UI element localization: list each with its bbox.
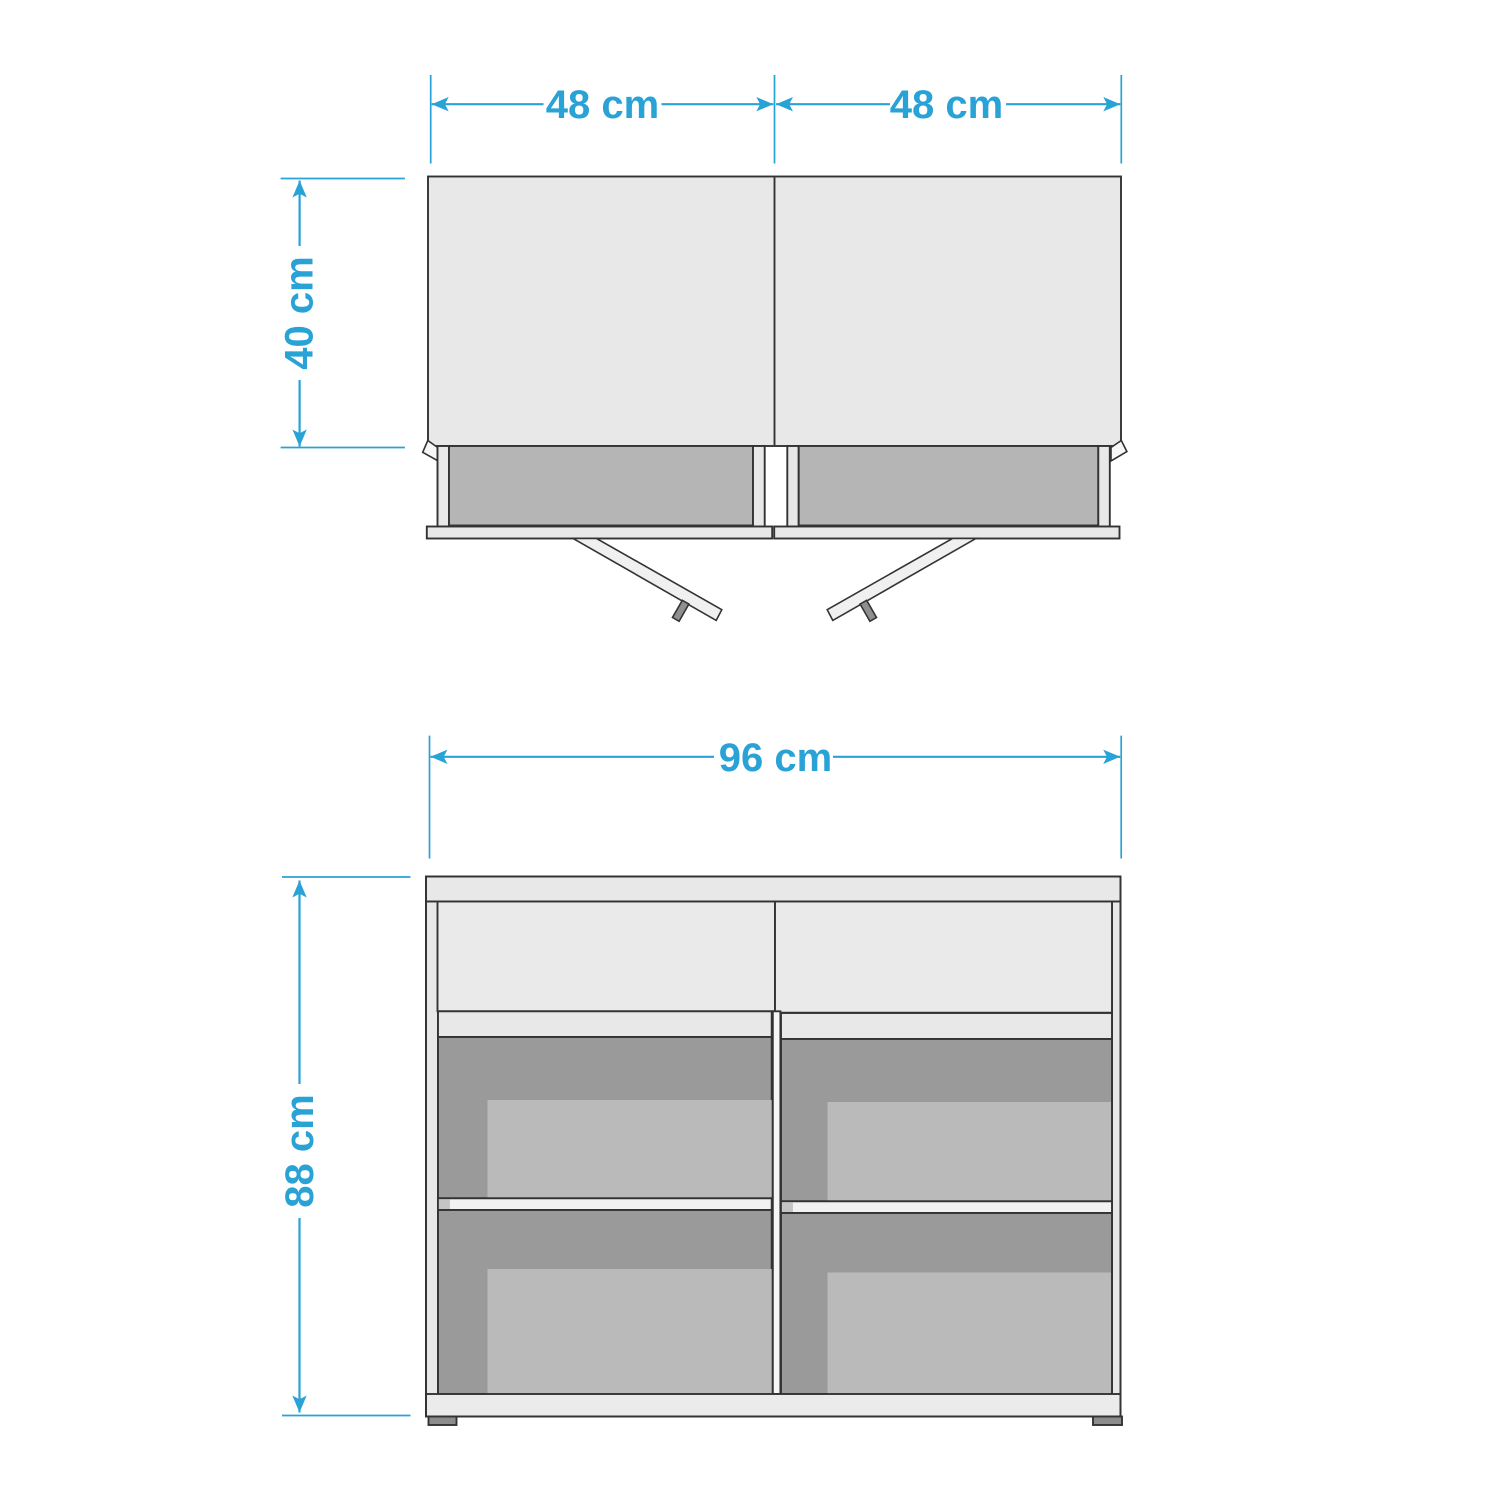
svg-text:88 cm: 88 cm	[278, 1094, 322, 1207]
svg-text:40 cm: 40 cm	[278, 256, 322, 369]
svg-text:48 cm: 48 cm	[546, 83, 659, 127]
svg-text:96 cm: 96 cm	[719, 736, 832, 780]
svg-text:48 cm: 48 cm	[890, 83, 1003, 127]
